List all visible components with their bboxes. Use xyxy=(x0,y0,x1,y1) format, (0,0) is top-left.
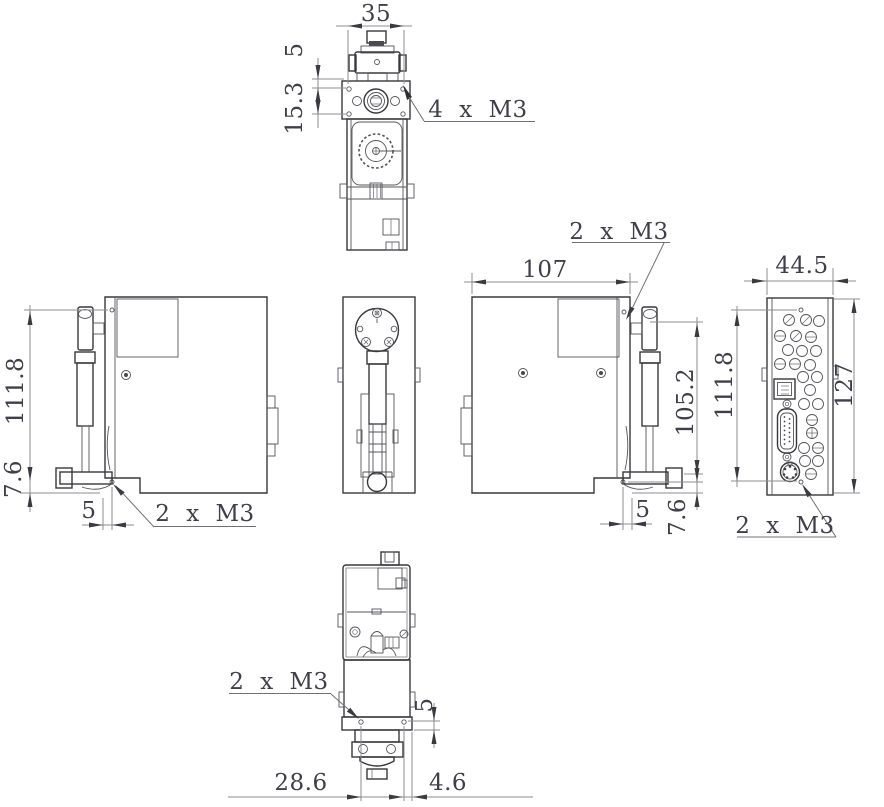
dim-right-width: 107 xyxy=(522,257,567,283)
dim-bottom-edge: 4.6 xyxy=(429,770,467,796)
front-view-shaft xyxy=(357,351,398,493)
dim-rear-height: 127 xyxy=(832,362,858,407)
right-view-outline xyxy=(461,297,630,493)
rear-panel-vent-holes xyxy=(775,315,825,480)
drawing-canvas: 35 5 15.3 4 x M3 xyxy=(0,0,884,807)
dim-top-width: 35 xyxy=(361,1,391,27)
rear-view: 44.5 127 111.8 2 x M3 xyxy=(712,253,860,539)
top-view-plate xyxy=(342,81,410,119)
dsub-connector xyxy=(778,400,797,461)
circular-connector xyxy=(353,89,400,113)
top-view-dimensions: 35 5 15.3 4 x M3 xyxy=(282,1,535,135)
dim-clamp-offset: 5 xyxy=(282,42,308,57)
left-side-view: 111.8 7.6 5 2 x M3 xyxy=(1,297,278,530)
top-view-clamp-assembly xyxy=(349,31,406,81)
note-right-threads: 2 x M3 xyxy=(569,219,668,245)
dim-right-edge: 5 xyxy=(635,497,650,523)
dim-left-hole-span: 111.8 xyxy=(3,357,29,425)
knurled-knob xyxy=(359,134,401,168)
top-view-body xyxy=(340,119,414,250)
dim-hole-pitch: 15.3 xyxy=(282,81,308,134)
left-view-outline xyxy=(105,297,278,493)
rear-view-dimensions: 44.5 127 111.8 2 x M3 xyxy=(712,253,860,539)
engineering-drawing: 35 5 15.3 4 x M3 xyxy=(0,0,884,807)
dim-right-probe-height: 105.2 xyxy=(673,368,699,436)
dim-bottom-hole-span: 28.6 xyxy=(274,770,327,796)
top-view: 35 5 15.3 4 x M3 xyxy=(282,1,535,250)
bottom-view-dimensions: 2 x M3 5 28.6 4.6 xyxy=(228,669,533,801)
front-view-flange xyxy=(356,309,399,352)
note-top-threads: 4 x M3 xyxy=(428,97,527,123)
dim-bottom-flange: 5 xyxy=(412,697,438,712)
front-view xyxy=(338,297,420,493)
din-connector xyxy=(781,462,800,482)
dim-right-bottom: 7.6 xyxy=(665,498,691,536)
note-bottom-threads: 2 x M3 xyxy=(229,669,328,695)
right-side-view: 107 2 x M3 105.2 7.6 5 xyxy=(461,219,703,536)
bottom-view: 2 x M3 5 28.6 4.6 xyxy=(228,552,533,801)
bottom-view-body xyxy=(338,552,415,717)
left-view-dimensions: 111.8 7.6 5 2 x M3 xyxy=(1,305,256,530)
usb-connector xyxy=(774,379,795,399)
note-rear-threads: 2 x M3 xyxy=(735,513,834,539)
note-left-threads: 2 x M3 xyxy=(155,501,254,527)
bottom-view-flange xyxy=(342,717,412,779)
dim-left-edge: 5 xyxy=(81,498,96,524)
dim-rear-width: 44.5 xyxy=(775,253,828,279)
dim-rear-hole-span: 111.8 xyxy=(712,351,738,419)
dim-left-bottom: 7.6 xyxy=(1,460,27,498)
